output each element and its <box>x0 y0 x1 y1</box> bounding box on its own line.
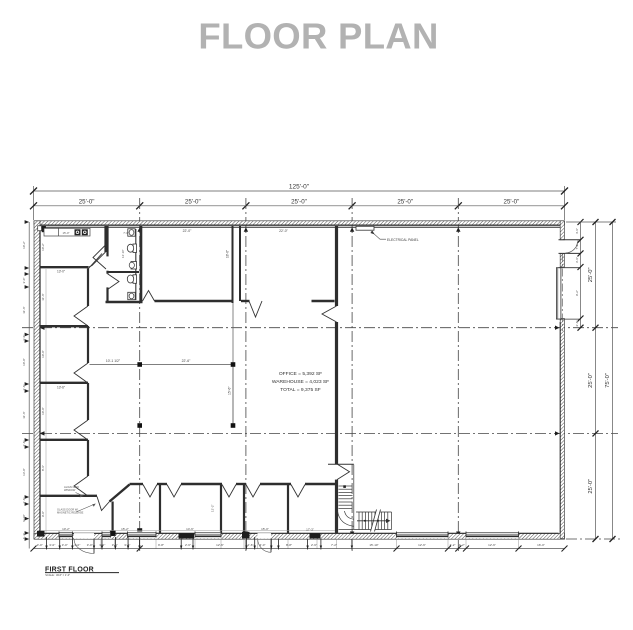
svg-text:12'-6": 12'-6" <box>418 543 426 547</box>
svg-text:WINDOW: WINDOW <box>64 488 76 492</box>
svg-text:3'-0": 3'-0" <box>124 543 130 547</box>
svg-text:13'-6": 13'-6" <box>57 385 65 389</box>
svg-text:25'-0": 25'-0" <box>588 267 594 282</box>
svg-text:15'-0": 15'-0" <box>62 231 69 235</box>
svg-text:7'-2": 7'-2" <box>331 543 337 547</box>
svg-text:3'-0": 3'-0" <box>49 543 55 547</box>
svg-text:13'-2": 13'-2" <box>211 504 215 512</box>
svg-text:10'-2": 10'-2" <box>22 241 26 249</box>
svg-text:2'-6": 2'-6" <box>575 321 579 327</box>
svg-text:22'-6": 22'-6" <box>182 359 191 363</box>
svg-text:TOTAL = 9,375 SF: TOTAL = 9,375 SF <box>280 387 321 393</box>
svg-text:22'-0": 22'-0" <box>279 229 288 233</box>
svg-text:2'-6": 2'-6" <box>311 543 317 547</box>
svg-text:4'-6": 4'-6" <box>575 228 579 234</box>
svg-text:25'-0": 25'-0" <box>588 373 594 388</box>
svg-text:9'-0": 9'-0" <box>41 511 45 517</box>
svg-text:10'-1 1/2": 10'-1 1/2" <box>106 359 121 363</box>
svg-text:4'-2": 4'-2" <box>459 543 465 547</box>
svg-text:3'-0": 3'-0" <box>37 543 43 547</box>
svg-text:18'-6": 18'-6" <box>226 250 230 258</box>
svg-text:12'-6": 12'-6" <box>488 543 496 547</box>
svg-text:9'-8": 9'-8" <box>158 543 164 547</box>
svg-text:1'-6": 1'-6" <box>22 441 26 447</box>
svg-text:25'-0": 25'-0" <box>291 198 307 205</box>
svg-text:8'-8": 8'-8" <box>286 543 292 547</box>
svg-text:3'-0": 3'-0" <box>99 543 105 547</box>
svg-text:1'-6": 1'-6" <box>22 385 26 391</box>
svg-text:75'-0": 75'-0" <box>605 373 611 388</box>
svg-text:14'-6": 14'-6" <box>186 527 194 531</box>
svg-text:10'-2": 10'-2" <box>41 243 45 251</box>
svg-text:FLOOR PLAN: FLOOR PLAN <box>198 16 438 57</box>
svg-text:16'-0": 16'-0" <box>537 543 545 547</box>
svg-text:15'-6": 15'-6" <box>228 386 232 395</box>
svg-text:1'-6": 1'-6" <box>22 335 26 341</box>
svg-text:15'-10": 15'-10" <box>369 543 378 547</box>
svg-text:ELECTRICAL PANEL: ELECTRICAL PANEL <box>387 238 419 242</box>
svg-text:MAGNETIC RELEASE: MAGNETIC RELEASE <box>57 511 84 515</box>
svg-text:10'-0": 10'-0" <box>22 358 26 366</box>
svg-text:10'-0": 10'-0" <box>41 350 45 358</box>
svg-text:17'-3": 17'-3" <box>306 528 314 532</box>
svg-text:7'-2": 7'-2" <box>575 244 579 250</box>
svg-text:1'-6": 1'-6" <box>22 498 26 504</box>
svg-text:SCALE : 3/16" = 1'-0": SCALE : 3/16" = 1'-0" <box>45 573 70 577</box>
svg-text:4'-2": 4'-2" <box>450 543 456 547</box>
svg-text:3'-0": 3'-0" <box>62 543 68 547</box>
svg-text:25'-0": 25'-0" <box>504 198 520 205</box>
svg-text:3'-0": 3'-0" <box>87 543 93 547</box>
svg-text:9'-2": 9'-2" <box>575 290 579 296</box>
svg-text:3'-0": 3'-0" <box>74 543 80 547</box>
svg-text:10'-2": 10'-2" <box>62 527 70 531</box>
svg-text:3'-6": 3'-6" <box>575 257 579 263</box>
svg-text:3'-0": 3'-0" <box>112 543 118 547</box>
svg-text:25'-0": 25'-0" <box>79 198 95 205</box>
svg-text:125'-0": 125'-0" <box>289 184 310 191</box>
svg-text:11'-6": 11'-6" <box>22 411 26 418</box>
svg-text:2'-6": 2'-6" <box>185 543 191 547</box>
svg-text:15'-0": 15'-0" <box>261 527 269 531</box>
svg-text:3'-0": 3'-0" <box>22 278 26 284</box>
svg-text:12'-6": 12'-6" <box>216 543 224 547</box>
svg-text:1'-4": 1'-4" <box>22 533 26 539</box>
svg-text:13'-0": 13'-0" <box>22 468 26 476</box>
svg-text:3'-0": 3'-0" <box>260 543 266 547</box>
svg-text:6'-10": 6'-10" <box>22 514 26 522</box>
svg-text:25'-0": 25'-0" <box>397 198 413 205</box>
svg-text:2'-6": 2'-6" <box>248 543 254 547</box>
svg-text:OFFICE = 5,392 SF: OFFICE = 5,392 SF <box>279 371 322 377</box>
svg-text:14'-10": 14'-10" <box>121 249 125 258</box>
svg-text:15'-2": 15'-2" <box>121 527 129 531</box>
svg-text:11'-6": 11'-6" <box>22 306 26 313</box>
svg-text:25'-0": 25'-0" <box>588 479 594 494</box>
svg-text:13'-0": 13'-0" <box>57 270 65 274</box>
svg-text:10'-0": 10'-0" <box>41 407 45 415</box>
svg-text:22'-0": 22'-0" <box>183 229 192 233</box>
svg-text:8'-6": 8'-6" <box>41 465 45 471</box>
svg-text:25'-0": 25'-0" <box>185 198 201 205</box>
svg-text:7'-0": 7'-0" <box>123 231 129 235</box>
svg-text:WAREHOUSE = 4,023 SF: WAREHOUSE = 4,023 SF <box>272 379 329 385</box>
svg-text:11'-6": 11'-6" <box>41 293 45 300</box>
